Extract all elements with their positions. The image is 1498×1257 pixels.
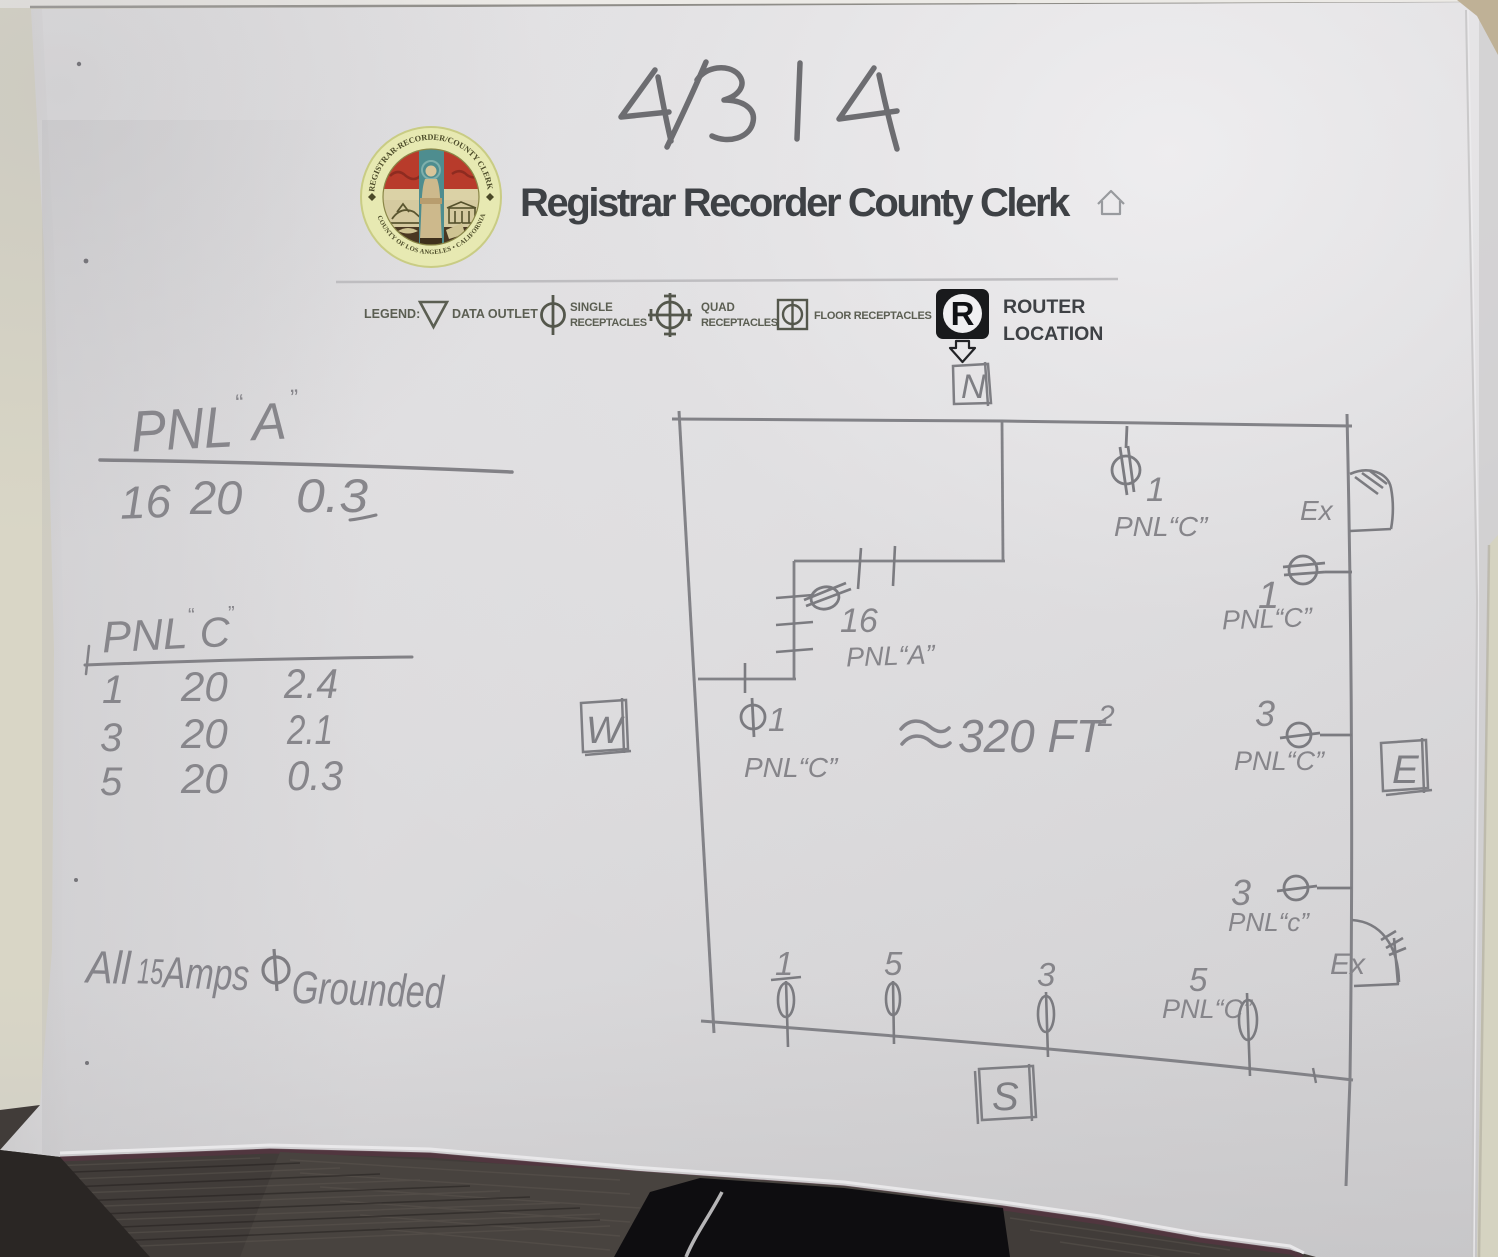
svg-text:S: S	[992, 1075, 1019, 1119]
svg-text:LOCATION: LOCATION	[1003, 323, 1103, 345]
svg-text:ROUTER: ROUTER	[1003, 296, 1085, 318]
svg-text:PNL: PNL	[129, 394, 234, 464]
svg-text:A: A	[247, 393, 288, 453]
svg-text:5: 5	[884, 945, 903, 982]
svg-text:“: “	[188, 605, 195, 627]
svg-text:C: C	[198, 608, 231, 657]
svg-text:2.4: 2.4	[283, 660, 338, 707]
svg-text:5: 5	[1189, 961, 1208, 998]
svg-text:RECEPTACLES: RECEPTACLES	[701, 317, 778, 329]
svg-text:”: ”	[290, 385, 299, 412]
svg-text:PNL“C”: PNL“C”	[1114, 511, 1209, 542]
svg-text:SINGLE: SINGLE	[570, 302, 613, 314]
svg-text:16: 16	[119, 475, 172, 529]
svg-text:PNL“C”: PNL“C”	[1234, 746, 1325, 776]
svg-text:0.3: 0.3	[296, 469, 368, 522]
svg-text:PNL“A”: PNL“A”	[846, 639, 937, 672]
svg-text:”: ”	[228, 603, 235, 625]
svg-text:“: “	[235, 390, 244, 417]
svg-text:E: E	[1392, 748, 1420, 792]
svg-text:N: N	[961, 368, 986, 406]
svg-text:20: 20	[180, 755, 228, 802]
svg-text:2.1: 2.1	[286, 706, 333, 753]
svg-text:PNL“c”: PNL“c”	[1228, 907, 1310, 937]
svg-text:PNL: PNL	[101, 609, 189, 662]
svg-text:0.3: 0.3	[287, 752, 343, 799]
svg-text:W: W	[586, 710, 625, 752]
svg-text:15: 15	[137, 950, 165, 992]
svg-text:3: 3	[1255, 693, 1275, 734]
svg-text:QUAD: QUAD	[701, 302, 735, 314]
svg-text:20: 20	[180, 663, 228, 710]
svg-text:Grounded: Grounded	[291, 961, 446, 1018]
svg-text:1: 1	[102, 668, 124, 712]
svg-text:5: 5	[100, 760, 123, 804]
svg-text:3: 3	[1037, 956, 1056, 993]
svg-text:1: 1	[775, 945, 793, 982]
svg-text:All: All	[83, 940, 133, 994]
svg-text:RECEPTACLES: RECEPTACLES	[570, 317, 647, 329]
svg-text:FLOOR RECEPTACLES: FLOOR RECEPTACLES	[814, 310, 932, 322]
svg-text:320 FT: 320 FT	[958, 710, 1107, 762]
svg-text:16: 16	[840, 602, 878, 640]
svg-text:Amps: Amps	[160, 948, 250, 1000]
svg-text:PNL“C”: PNL“C”	[1221, 602, 1313, 635]
svg-text:1: 1	[1146, 471, 1165, 509]
svg-text:3: 3	[100, 716, 122, 760]
svg-text:LEGEND:: LEGEND:	[364, 307, 420, 321]
svg-text:Ex: Ex	[1330, 948, 1366, 981]
svg-text:20: 20	[180, 710, 228, 757]
svg-text:R: R	[951, 295, 975, 332]
svg-text:PNL“C”: PNL“C”	[744, 752, 839, 783]
svg-text:2: 2	[1097, 700, 1115, 733]
svg-text:1: 1	[768, 701, 786, 738]
svg-text:DATA OUTLET: DATA OUTLET	[452, 307, 538, 321]
svg-text:Registrar Recorder County Cler: Registrar Recorder County Clerk	[520, 181, 1071, 225]
svg-text:20: 20	[189, 471, 242, 524]
svg-text:Ex: Ex	[1300, 495, 1334, 526]
